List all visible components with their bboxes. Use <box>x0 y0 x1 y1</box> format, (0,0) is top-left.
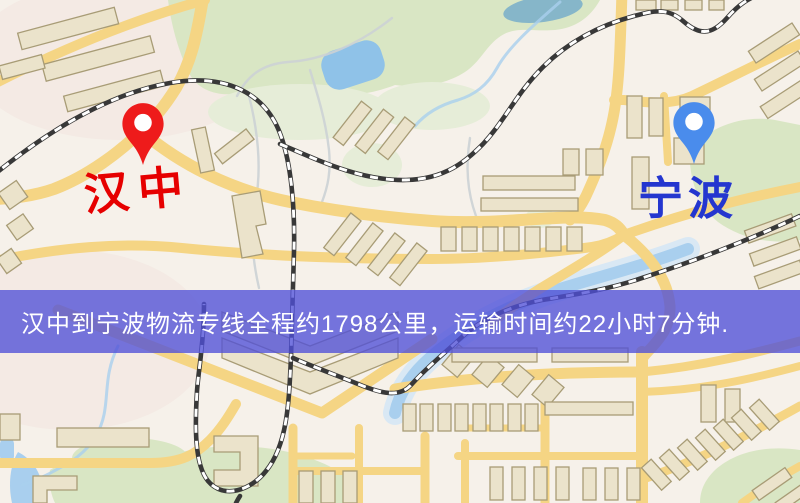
route-info-banner: 汉中到宁波物流专线全程约1798公里，运输时间约22小时7分钟. <box>0 290 800 353</box>
origin-city-label: 汉中 <box>82 163 194 217</box>
destination-city-label: 宁波 <box>638 176 738 221</box>
route-info-text: 汉中到宁波物流专线全程约1798公里，运输时间约22小时7分钟. <box>21 304 729 339</box>
origin-pin-icon[interactable] <box>120 101 166 167</box>
destination-pin-icon[interactable] <box>671 100 717 166</box>
map-artwork <box>0 0 800 503</box>
map-canvas[interactable]: 汉中 宁波 汉中到宁波物流专线全程约1798公里，运输时间约22小时7分钟. <box>0 0 800 503</box>
